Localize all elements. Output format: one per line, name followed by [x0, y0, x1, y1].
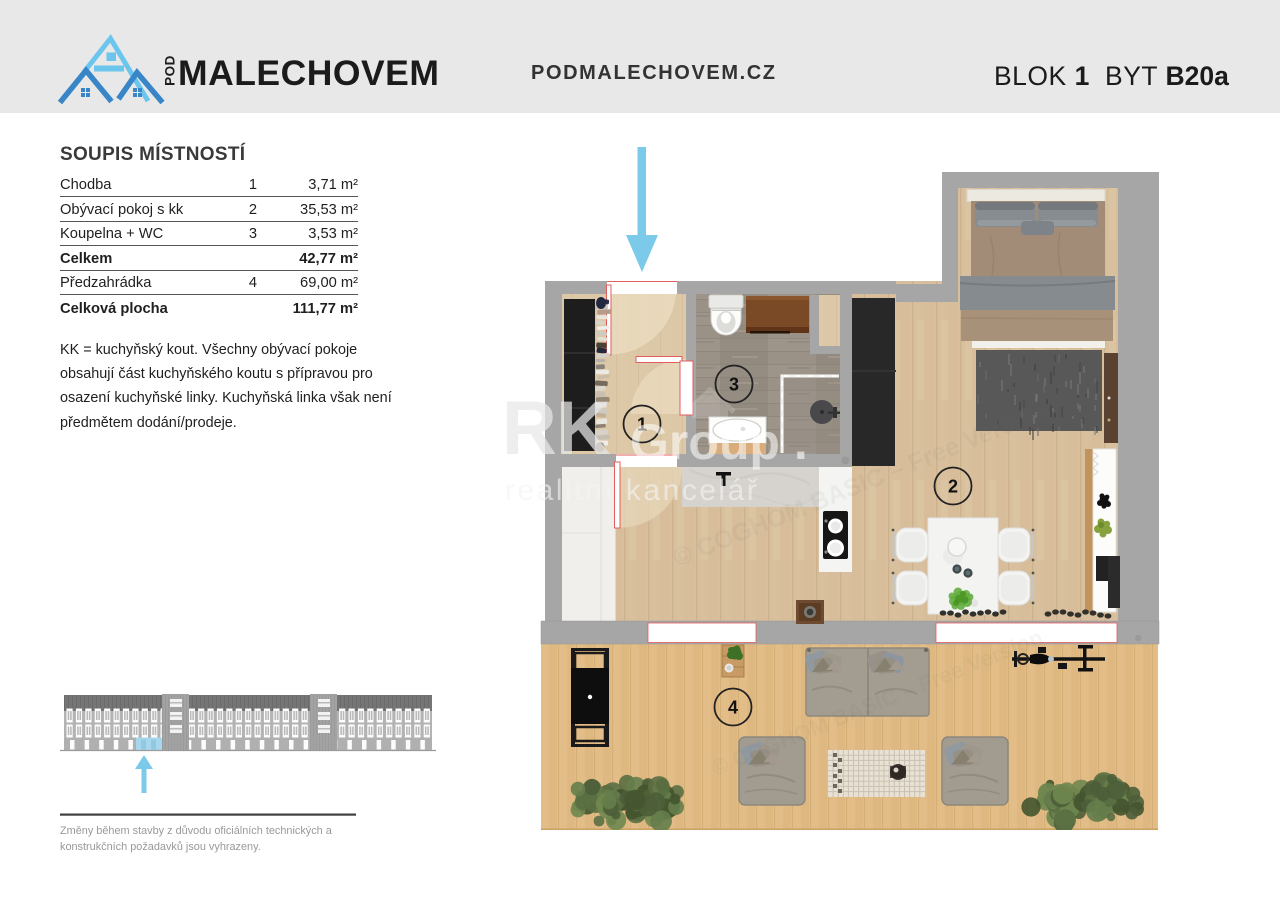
svg-text:2: 2 [948, 477, 958, 497]
svg-text:4: 4 [728, 698, 738, 718]
svg-text:3: 3 [729, 375, 739, 395]
